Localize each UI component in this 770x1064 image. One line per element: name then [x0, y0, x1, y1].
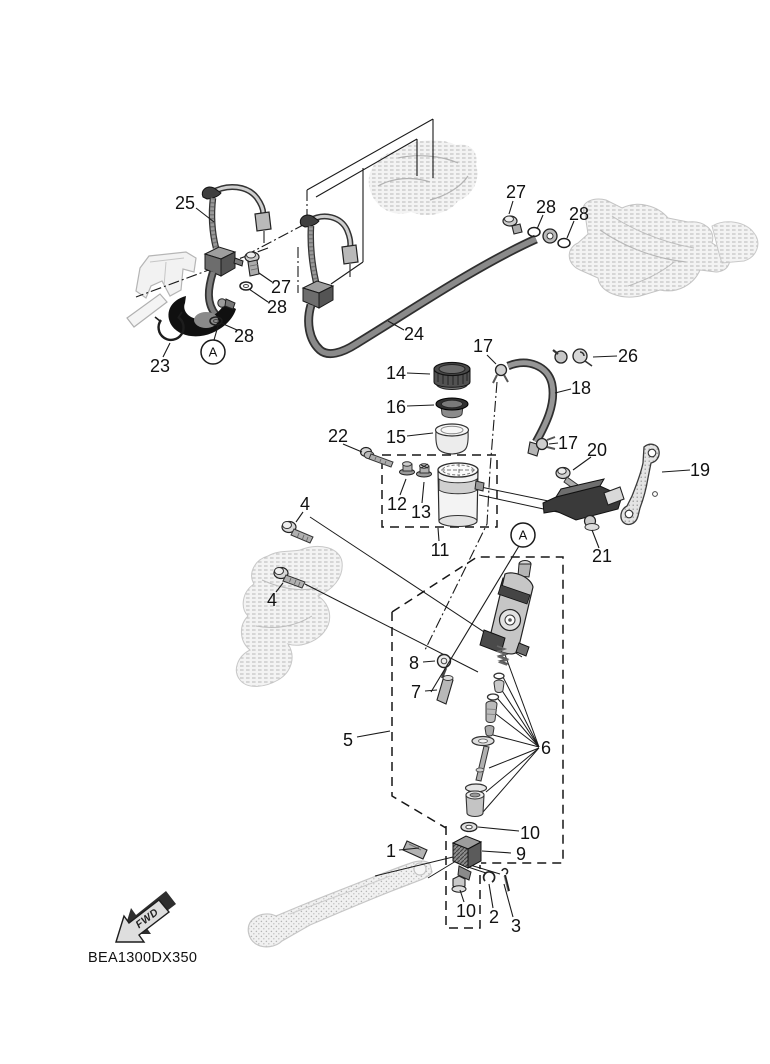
circlip-8: [438, 655, 451, 679]
parts-diagram-canvas: FWD BEA1300DX350 12344567891010111213141…: [0, 0, 770, 1064]
callout-9[interactable]: 9: [516, 844, 526, 864]
callout-14[interactable]: 14: [386, 363, 406, 383]
footrest-bracket-reference: [236, 546, 342, 686]
leader-line-12: [400, 479, 406, 495]
callout-13[interactable]: 13: [411, 502, 431, 522]
leader-line-10: [478, 827, 519, 831]
engine-block-reference: [369, 140, 478, 215]
pin-1: [403, 841, 427, 859]
leader-line-17: [549, 443, 558, 444]
callout-5[interactable]: 5: [343, 730, 353, 750]
brake-pedal-reference: [248, 861, 432, 947]
callout-11[interactable]: 11: [431, 540, 450, 560]
callout-3[interactable]: 3: [511, 916, 521, 936]
master-cylinder-assembly: [480, 561, 533, 665]
stay-19: [621, 444, 659, 524]
leader-line-23: [163, 343, 170, 357]
union-bolt-27-right: [503, 216, 522, 234]
union-bolt-27-left: [245, 252, 259, 276]
callout-18[interactable]: 18: [571, 378, 591, 398]
callout-4[interactable]: 4: [267, 590, 277, 610]
callout-17[interactable]: 17: [473, 336, 493, 356]
callout-2[interactable]: 2: [489, 907, 499, 927]
leader-line-5: [357, 731, 390, 737]
leader-line-2: [489, 884, 493, 908]
leader-line-26: [593, 356, 617, 357]
reservoir-cap-14: [434, 363, 470, 390]
leader-line-19: [662, 470, 690, 472]
leader-line-28: [537, 215, 543, 229]
leader-line-28: [249, 289, 268, 302]
float-15: [436, 424, 469, 454]
callout-27[interactable]: 27: [271, 277, 291, 297]
relation-line: [504, 652, 539, 747]
bolt-4-upper: [282, 522, 313, 544]
callout-28[interactable]: 28: [267, 297, 287, 317]
callout-16[interactable]: 16: [386, 397, 406, 417]
leader-line-18: [555, 389, 571, 393]
hose-clamp-17-top: [493, 365, 508, 384]
callout-25[interactable]: 25: [175, 193, 195, 213]
relation-line: [486, 748, 539, 792]
callout-22[interactable]: 22: [328, 426, 348, 446]
leader-line-9: [482, 851, 511, 853]
callout-28[interactable]: 28: [569, 204, 589, 224]
leader-line-16: [407, 405, 434, 406]
callout-27[interactable]: 27: [506, 182, 526, 202]
grommet-12: [400, 462, 415, 475]
match-marker-label: A: [519, 528, 528, 543]
rear-caliper-reference: [569, 199, 758, 297]
callout-8[interactable]: 8: [409, 653, 419, 673]
grommet-13: [417, 464, 432, 477]
banjo-eye-24: [543, 229, 557, 243]
callout-28[interactable]: 28: [234, 326, 254, 346]
callout-1[interactable]: 1: [386, 841, 396, 861]
relation-line: [489, 748, 539, 768]
callout-19[interactable]: 19: [690, 460, 710, 480]
callout-28[interactable]: 28: [536, 197, 556, 217]
diaphragm-16: [436, 398, 468, 418]
callout-6[interactable]: 6: [541, 738, 551, 758]
callout-23[interactable]: 23: [150, 356, 170, 376]
parts-diagram-page: FWD BEA1300DX350 12344567891010111213141…: [0, 0, 770, 1064]
pushrod-7: [437, 676, 453, 705]
fwd-arrow: FWD: [116, 891, 176, 942]
callout-21[interactable]: 21: [592, 546, 612, 566]
snap-ring-2: [484, 872, 495, 882]
hose-joint-block-24: [303, 281, 333, 308]
leader-line-14: [407, 373, 430, 374]
leader-line-7: [425, 690, 437, 691]
callout-24[interactable]: 24: [404, 324, 424, 344]
screw-22: [361, 448, 394, 468]
callout-10[interactable]: 10: [520, 823, 540, 843]
relation-line: [483, 749, 538, 812]
relation-line: [428, 861, 456, 878]
washer-10-upper: [461, 823, 477, 832]
leader-line-8: [423, 661, 435, 662]
callout-12[interactable]: 12: [387, 494, 407, 514]
brake-hose-lower-25: [209, 272, 216, 315]
diagram-code: BEA1300DX350: [88, 950, 197, 966]
callout-26[interactable]: 26: [618, 346, 638, 366]
reservoir-tank-11: [438, 463, 484, 527]
leader-line-13: [422, 482, 424, 503]
construction-lines: [136, 190, 562, 878]
leader-line-27: [509, 201, 513, 214]
callout-15[interactable]: 15: [386, 427, 406, 447]
callout-17[interactable]: 17: [558, 433, 578, 453]
leader-line-15: [407, 433, 433, 436]
callout-4[interactable]: 4: [300, 494, 310, 514]
washer-28-left-upper: [240, 282, 252, 290]
match-marker-label: A: [209, 345, 218, 360]
joint-block-9: [453, 836, 481, 880]
callout-7[interactable]: 7: [411, 682, 421, 702]
relation-line: [503, 677, 539, 747]
callout-10[interactable]: 10: [456, 901, 476, 921]
washer-28-right-2: [558, 239, 570, 248]
leader-line-17: [487, 355, 496, 364]
clamp-26: [553, 349, 592, 366]
brake-pipe-25: [202, 187, 271, 248]
reservoir-bracket-21: [543, 479, 624, 531]
callout-20[interactable]: 20: [587, 440, 607, 460]
nut-10-lower: [452, 876, 466, 892]
